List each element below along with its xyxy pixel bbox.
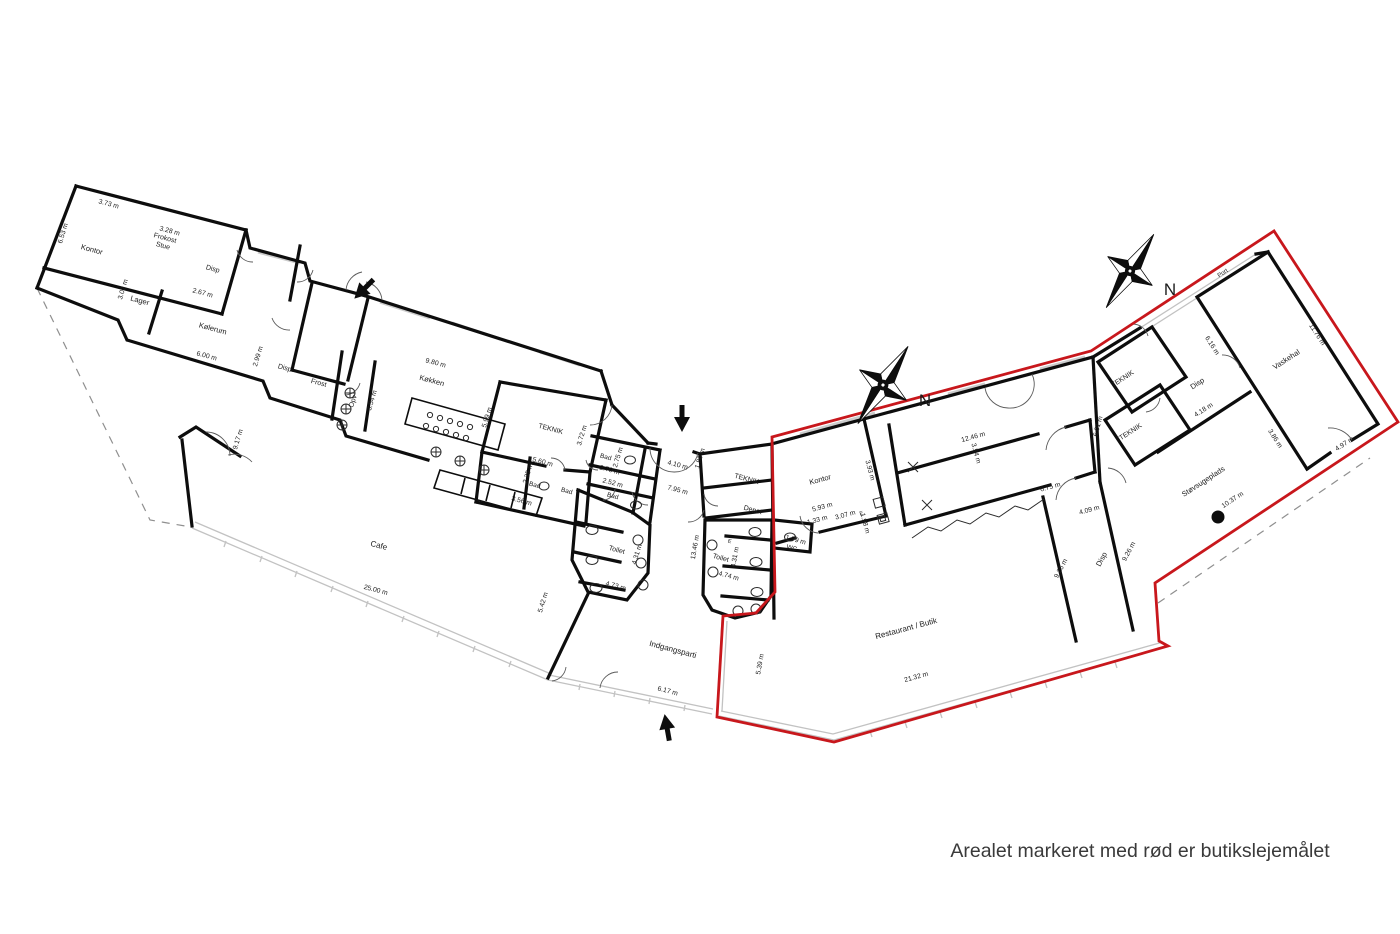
measurement-label: 4.10 m [667, 459, 689, 471]
room-label: Bad [528, 481, 541, 491]
room-labels: KontorFrokostStueDispLagerKølerumDispFro… [80, 232, 1302, 660]
measurement-label: 7.95 m [667, 484, 689, 496]
measurement-label: 4.09 m [1078, 504, 1100, 516]
glass-facade [50, 192, 1258, 740]
floor-plan-drawing: NN KontorFrokostStueDispLagerKølerumDisp… [0, 0, 1400, 934]
floor-plan-page: NN KontorFrokostStueDispLagerKølerumDisp… [0, 0, 1400, 934]
measurement-label: 4.31 m [730, 546, 741, 568]
measurement-label: 3.72 m [576, 424, 589, 446]
measurement-label: 5.39 m [755, 653, 766, 675]
room-label: Kølerum [198, 320, 228, 336]
measurement-label: 4.73 m [605, 580, 627, 592]
room-label: Køkken [418, 373, 445, 388]
measurement-label: 12.46 m [961, 431, 987, 444]
room-label: Bad [606, 492, 619, 502]
room-label: Disp [1094, 550, 1109, 567]
measurement-label: 3.86 m [1266, 428, 1283, 450]
measurement-label: 2.67 m [192, 287, 214, 299]
room-label: Disp [205, 264, 220, 274]
room-label: Cafe [370, 539, 389, 552]
measurement-label: 3.07 m [834, 509, 856, 521]
measurement-label: 5.42 m [537, 591, 550, 613]
room-label: Bad [599, 453, 612, 463]
room-label: Støvsugeplads [1180, 464, 1227, 499]
room-label: TEKNIK [1118, 422, 1143, 442]
room-label: Restaurant / Butik [874, 616, 939, 641]
measurement-label: 2.99 m [252, 345, 265, 367]
arrow-icon [674, 405, 690, 432]
room-label: Toilet [608, 545, 626, 556]
measurement-label: 6.17 m [657, 685, 679, 697]
measurement-label: 9.17 m [232, 428, 245, 450]
measurement-label: 6.01 m [1092, 415, 1104, 437]
measurement-label: 3.56 m [511, 495, 533, 507]
marker-dot [1212, 511, 1225, 524]
measurement-label: 1.33 m [806, 514, 828, 526]
measurement-label: 4.74 m [718, 570, 740, 582]
compass-north-label: N [1164, 280, 1176, 299]
measurement-label: 13.46 m [690, 534, 701, 560]
measurement-label: 2.75 m [612, 446, 625, 468]
room-label: E [727, 539, 732, 546]
measurement-label: 1.80 m [694, 447, 707, 469]
room-label: Bad [560, 487, 573, 497]
measurement-label: 3.73 m [98, 198, 120, 210]
measurement-label: 3.54 m [366, 389, 379, 411]
room-label: TEKNIK [1110, 369, 1135, 389]
compass-north-label: N [919, 391, 931, 410]
measurement-label: 5.93 m [811, 501, 833, 513]
room-label: Kontor [808, 472, 832, 487]
room-label: WC [785, 544, 798, 554]
room-label: Kontor [80, 242, 104, 257]
door-arcs [206, 250, 1352, 688]
equipment-symbols [337, 388, 489, 475]
room-label: Disp [1189, 376, 1206, 392]
compass-rose-icon [1084, 220, 1176, 322]
room-label: TEKNIK [537, 423, 564, 436]
measurement-label: 21.32 m [904, 671, 930, 684]
cross-symbol [922, 500, 932, 510]
room-label: Toilet [712, 553, 730, 564]
room-label: Indgangsparti [648, 639, 697, 660]
measurement-label: 6.16 m [1203, 335, 1220, 357]
measurement-label: 10.37 m [1221, 490, 1246, 509]
room-label: Disp [277, 363, 292, 373]
measurement-label: 9.26 m [1121, 541, 1137, 563]
legend-caption: Arealet markeret med rød er butikslejemå… [925, 840, 1355, 863]
room-label: Vaskehal [1271, 347, 1302, 371]
arrow-icon [657, 713, 677, 742]
measurement-label: 4.97 m [1334, 435, 1356, 452]
measurement-label: 4.31 m [631, 543, 644, 565]
measurement-label: 9.80 m [425, 357, 447, 369]
